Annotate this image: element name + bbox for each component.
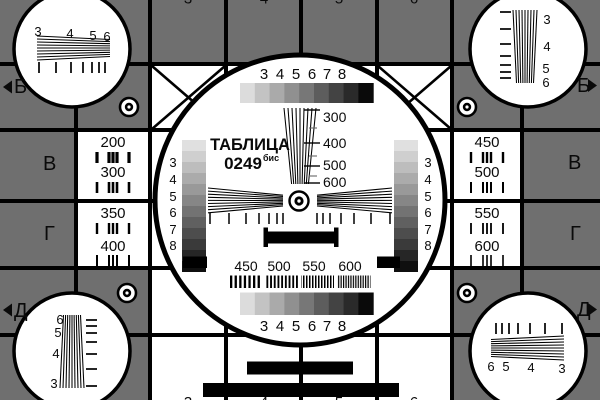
target-icon <box>120 98 138 116</box>
digit: 7 <box>323 66 331 83</box>
freq-label: 550 <box>302 258 326 274</box>
digit: 4 <box>276 66 284 83</box>
wedge-digit: 3 <box>558 361 565 376</box>
digit: 6 <box>308 318 316 335</box>
digit: 7 <box>323 318 331 335</box>
wedge-label: 500 <box>323 157 347 173</box>
wedge-label: 600 <box>323 174 347 190</box>
wedge-digit: 4 <box>66 26 73 41</box>
freq-label: 600 <box>338 258 362 274</box>
row-letter-left: В <box>43 153 56 175</box>
edge-digit-top: 6 <box>410 0 418 8</box>
resolution-number: 400 <box>100 238 125 255</box>
row-letter-right: В <box>568 152 581 174</box>
resolution-number: 550 <box>474 205 499 222</box>
wedge-digit: 5 <box>89 28 96 43</box>
digit: 8 <box>338 66 346 83</box>
row-letter-left: Б <box>14 76 27 98</box>
digit: 7 <box>424 222 431 237</box>
wedge-digit: 5 <box>502 359 509 374</box>
frequency-bar-600 <box>337 276 371 289</box>
digit: 4 <box>169 172 176 187</box>
digit: 8 <box>338 318 346 335</box>
row-letter-left: Д <box>14 300 28 322</box>
resolution-number: 600 <box>474 238 499 255</box>
grayscale-staircase-left <box>182 140 206 272</box>
digit: 3 <box>260 66 268 83</box>
target-icon <box>118 284 136 302</box>
wedge-digit: 4 <box>52 346 59 361</box>
bullseye-icon <box>290 192 309 211</box>
digit: 3 <box>260 318 268 335</box>
resolution-number: 500 <box>474 164 499 181</box>
resolution-number: 300 <box>100 164 125 181</box>
tv-test-card: 3 4 5 6 3 4 5 6 6 5 4 3 6 5 4 3 3 4 5 6 … <box>0 0 600 400</box>
wedge-digit: 5 <box>542 61 549 76</box>
target-icon <box>458 284 476 302</box>
wedge-label: 400 <box>323 135 347 151</box>
grayscale-staircase-right <box>394 140 418 272</box>
wedge-digit: 6 <box>542 75 549 90</box>
digit: 3 <box>169 155 176 170</box>
corner-circle-bottom-right <box>470 293 586 400</box>
digit: 6 <box>424 205 431 220</box>
edge-digit-bottom: 3 <box>184 394 192 400</box>
title-number: 0249 <box>224 154 262 173</box>
wedge-digit: 3 <box>543 12 550 27</box>
frequency-bar-500 <box>265 276 298 289</box>
freq-label: 500 <box>267 258 291 274</box>
row-letter-right: Г <box>570 223 581 245</box>
edge-digit-bottom: 5 <box>335 394 343 400</box>
wedge-label: 300 <box>323 109 347 125</box>
edge-digit-top: 5 <box>335 0 343 8</box>
row-letter-left: Г <box>44 223 55 245</box>
grayscale-staircase-top <box>240 83 374 103</box>
frequency-bar-450 <box>228 276 262 289</box>
wedge-digit: 3 <box>50 376 57 391</box>
wedge-digit: 6 <box>487 359 494 374</box>
edge-digit-bottom: 6 <box>410 394 418 400</box>
grayscale-staircase-bottom <box>240 293 374 316</box>
digit: 6 <box>308 66 316 83</box>
wedge-digit: 6 <box>103 29 110 44</box>
wedge-digit: 4 <box>527 360 534 375</box>
target-icon <box>458 98 476 116</box>
digit: 4 <box>424 172 431 187</box>
vertical-wedge-labels: 300 400 500 600 <box>323 109 347 190</box>
title-word: ТАБЛИЦА <box>210 136 290 154</box>
frequency-bar-550 <box>301 276 334 289</box>
digit: 8 <box>169 238 176 253</box>
resolution-number: 350 <box>100 205 125 222</box>
wedge-digit: 4 <box>543 39 550 54</box>
wedge-digit: 5 <box>54 325 61 340</box>
digit: 7 <box>169 222 176 237</box>
title-suffix: бис <box>263 153 279 163</box>
digit: 3 <box>424 155 431 170</box>
wedge-digit: 3 <box>34 24 41 39</box>
digit: 8 <box>424 238 431 253</box>
resolution-number: 200 <box>100 134 125 151</box>
edge-digit-bottom: 4 <box>260 394 268 400</box>
digit: 5 <box>424 189 431 204</box>
digit: 4 <box>276 318 284 335</box>
digit: 5 <box>292 318 300 335</box>
edge-digit-top: 4 <box>260 0 268 8</box>
freq-label: 450 <box>234 258 258 274</box>
digit: 5 <box>169 189 176 204</box>
digit: 5 <box>292 66 300 83</box>
resolution-number: 450 <box>474 134 499 151</box>
edge-digit-top: 3 <box>184 0 192 8</box>
digit: 6 <box>169 205 176 220</box>
